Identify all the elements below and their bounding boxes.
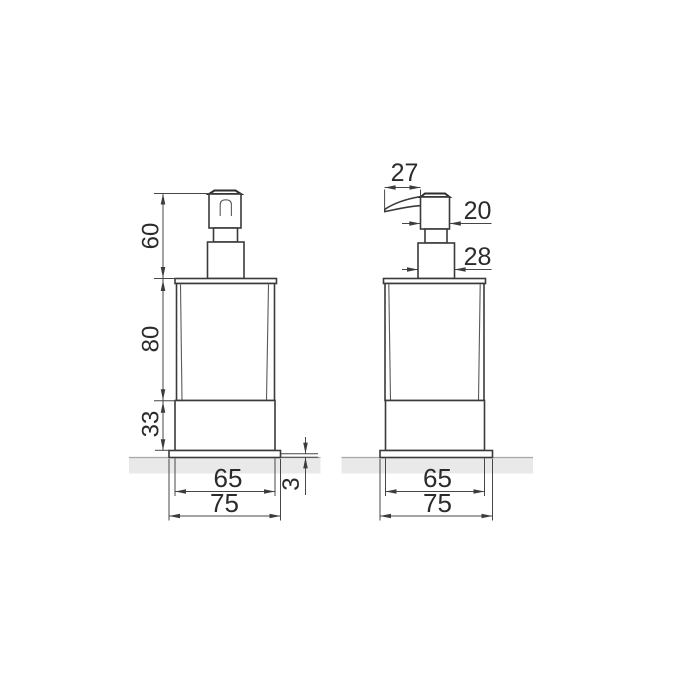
technical-drawing: 60 80 33 3 65 75 <box>0 0 700 700</box>
arrow-right-icon <box>270 514 281 519</box>
front-pump-neck <box>214 228 238 242</box>
arrow-right-icon <box>474 489 485 494</box>
arrow-right-icon <box>482 514 493 519</box>
side-pump-neck <box>425 229 447 243</box>
front-glass-body <box>177 284 275 401</box>
side-view <box>380 194 493 458</box>
arrow-down-icon <box>161 439 166 450</box>
front-pump-collar <box>208 242 245 279</box>
side-spout <box>385 197 421 212</box>
side-pump-head <box>421 197 450 229</box>
side-pump-collar <box>418 243 455 279</box>
arrow-up-icon <box>161 194 166 205</box>
arrow-left-icon <box>169 514 180 519</box>
arrow-right-icon <box>264 489 275 494</box>
side-base-block <box>386 401 485 451</box>
arrow-right-icon <box>409 221 420 226</box>
dim-label-pump-height: 60 <box>138 223 165 250</box>
arrow-down-icon <box>303 443 308 454</box>
front-pump-head <box>209 194 241 228</box>
arrow-down-icon <box>161 389 166 400</box>
arrow-left-icon <box>386 489 397 494</box>
side-base-plate <box>380 451 493 458</box>
arrow-left-icon <box>380 514 391 519</box>
side-glass-body <box>385 284 484 401</box>
dim-label-pump-width: 20 <box>464 197 492 225</box>
dim-label-body-height: 80 <box>138 326 165 353</box>
dim-label-plate-thickness: 3 <box>278 477 305 490</box>
dim-label-spout-reach: 27 <box>391 159 419 187</box>
dim-label-collar-width: 28 <box>464 243 492 271</box>
front-base-block <box>175 401 275 451</box>
dim-label-plate-width: 75 <box>423 488 452 518</box>
front-view <box>169 191 281 458</box>
arrow-left-icon <box>450 221 461 226</box>
arrow-up-icon <box>161 280 166 291</box>
arrow-right-icon <box>407 267 418 272</box>
dimension-drawing-page: 60 80 33 3 65 75 <box>0 0 700 700</box>
dim-label-plate-width: 75 <box>210 488 239 518</box>
ground-surface <box>129 458 533 474</box>
arrow-down-icon <box>161 267 166 278</box>
front-base-plate <box>169 451 281 458</box>
arrow-left-icon <box>175 489 186 494</box>
dim-label-base-height: 33 <box>138 411 165 438</box>
